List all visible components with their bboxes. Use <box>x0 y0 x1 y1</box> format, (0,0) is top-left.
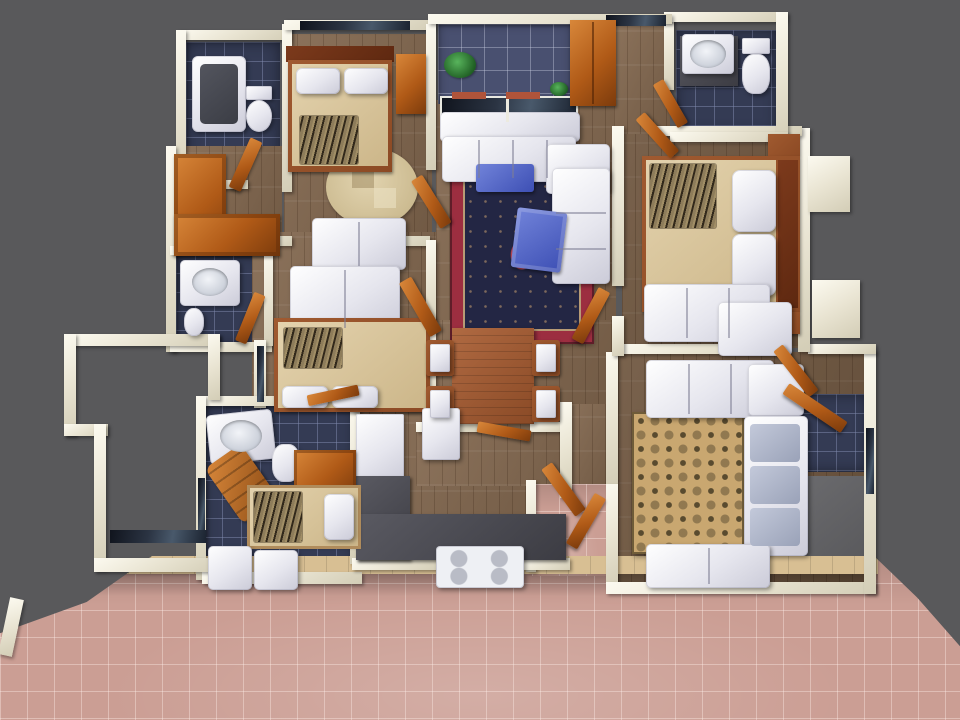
dresser <box>396 54 426 114</box>
wall-pillar <box>808 156 850 212</box>
toilet-tank <box>246 86 272 100</box>
sofa-cushion <box>750 466 800 504</box>
bench <box>476 164 534 192</box>
sofa-seam <box>708 548 710 584</box>
sofa-seam <box>546 140 548 178</box>
pillow <box>324 494 354 540</box>
wardrobe-l-bottom <box>174 214 280 256</box>
stove <box>436 546 524 588</box>
window <box>198 478 205 536</box>
wall <box>178 30 290 40</box>
round-rug-check <box>374 188 396 208</box>
damask-rug <box>632 412 744 554</box>
kitchen-counter-white <box>356 414 404 482</box>
dining-table <box>452 328 534 424</box>
chair-cushion <box>536 390 556 418</box>
wardrobe-door-seam <box>592 22 594 104</box>
pillow <box>296 68 340 94</box>
zebra-throw <box>300 116 358 164</box>
toilet-bowl <box>246 100 272 132</box>
sofa-cushion <box>750 424 800 462</box>
toilet-tank <box>742 38 770 54</box>
wall-pillar <box>812 280 860 338</box>
sofa-seam <box>478 140 480 178</box>
bed-headboard <box>778 160 798 308</box>
chair-cushion <box>430 344 450 372</box>
washer <box>254 550 298 590</box>
washer <box>208 546 252 590</box>
plant <box>444 52 476 78</box>
coffee-table <box>511 207 568 273</box>
sofa-seam <box>730 364 732 414</box>
pillow <box>732 170 776 232</box>
wall <box>606 352 618 484</box>
window-mullion <box>506 98 509 122</box>
sofa-seam <box>728 288 730 338</box>
pillow <box>344 68 388 94</box>
window-sill <box>506 92 540 99</box>
chair-cushion <box>430 390 450 418</box>
washbasin <box>690 40 726 68</box>
wall <box>808 344 876 354</box>
wall <box>606 484 618 588</box>
sofa-seam <box>358 222 360 266</box>
window <box>110 530 206 543</box>
nightstand <box>768 134 800 156</box>
floor-plan-canvas <box>0 0 960 720</box>
zebra-throw <box>254 492 302 542</box>
courtyard-wall <box>94 424 106 570</box>
window <box>257 346 264 402</box>
window-sill <box>452 92 486 99</box>
wall <box>664 12 786 22</box>
sofa-seam <box>344 270 346 328</box>
bathtub-basin <box>200 64 238 124</box>
sofa-seam <box>556 212 606 214</box>
sofa-seam <box>688 364 690 414</box>
wall <box>612 316 624 356</box>
window <box>866 428 874 494</box>
courtyard-wall <box>208 334 220 400</box>
sofa-seam <box>556 248 606 250</box>
wall <box>776 12 788 142</box>
wall <box>264 250 273 346</box>
washbasin <box>192 268 228 296</box>
window <box>300 21 410 30</box>
toilet-bowl <box>742 54 770 94</box>
sofa-cushion <box>750 508 800 546</box>
sofa-seam <box>512 140 514 178</box>
zebra-throw <box>650 164 716 228</box>
courtyard-wall <box>64 334 76 436</box>
toilet-bowl <box>184 308 204 336</box>
courtyard-wall <box>94 558 218 572</box>
wall <box>664 18 674 90</box>
zebra-throw <box>284 328 342 368</box>
wall <box>426 24 436 170</box>
courtyard-wall <box>70 334 220 346</box>
wall <box>612 126 624 286</box>
washbasin <box>220 420 262 452</box>
chair-cushion <box>536 344 556 372</box>
plant <box>550 82 568 96</box>
sofa-seam <box>686 288 688 338</box>
